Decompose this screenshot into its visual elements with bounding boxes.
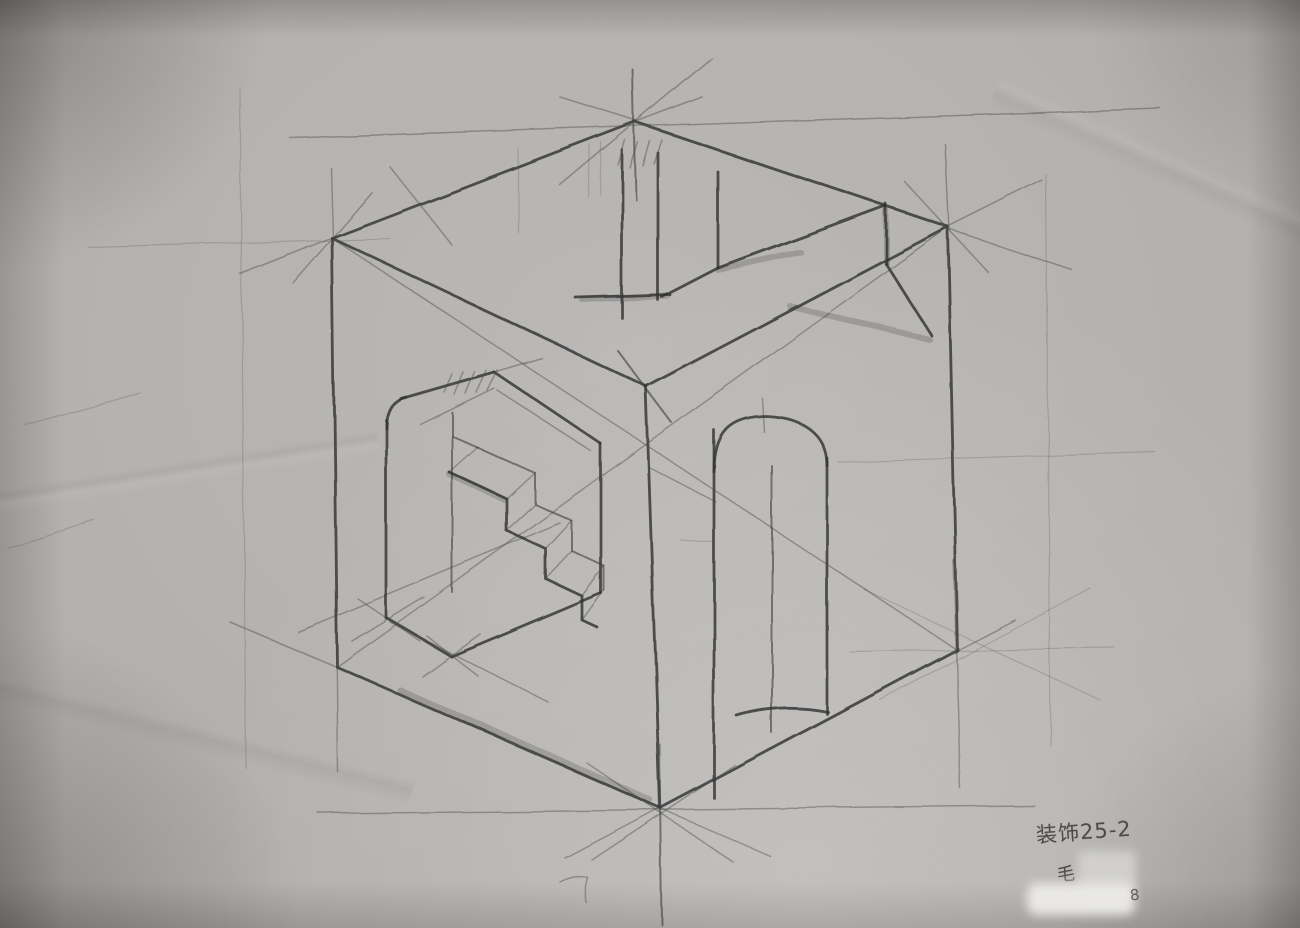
- paper-grain-texture: [0, 0, 1300, 928]
- pencil-sketch-svg: [0, 0, 1300, 928]
- photographed-pencil-drawing: 装饰25-2 毛 8: [0, 0, 1300, 928]
- pencil-stroke: [583, 296, 668, 300]
